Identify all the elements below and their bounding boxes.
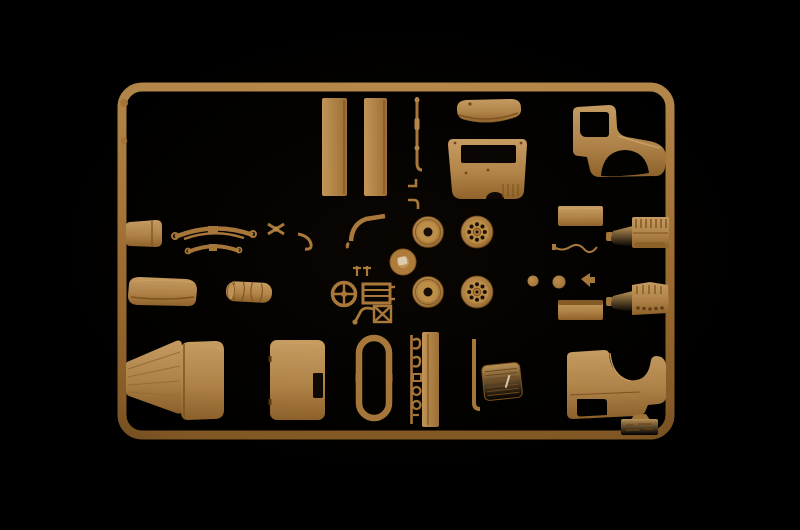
sprue-photo — [0, 0, 800, 530]
sprue-photo-canvas — [0, 0, 800, 530]
photo-vignette — [0, 0, 800, 530]
